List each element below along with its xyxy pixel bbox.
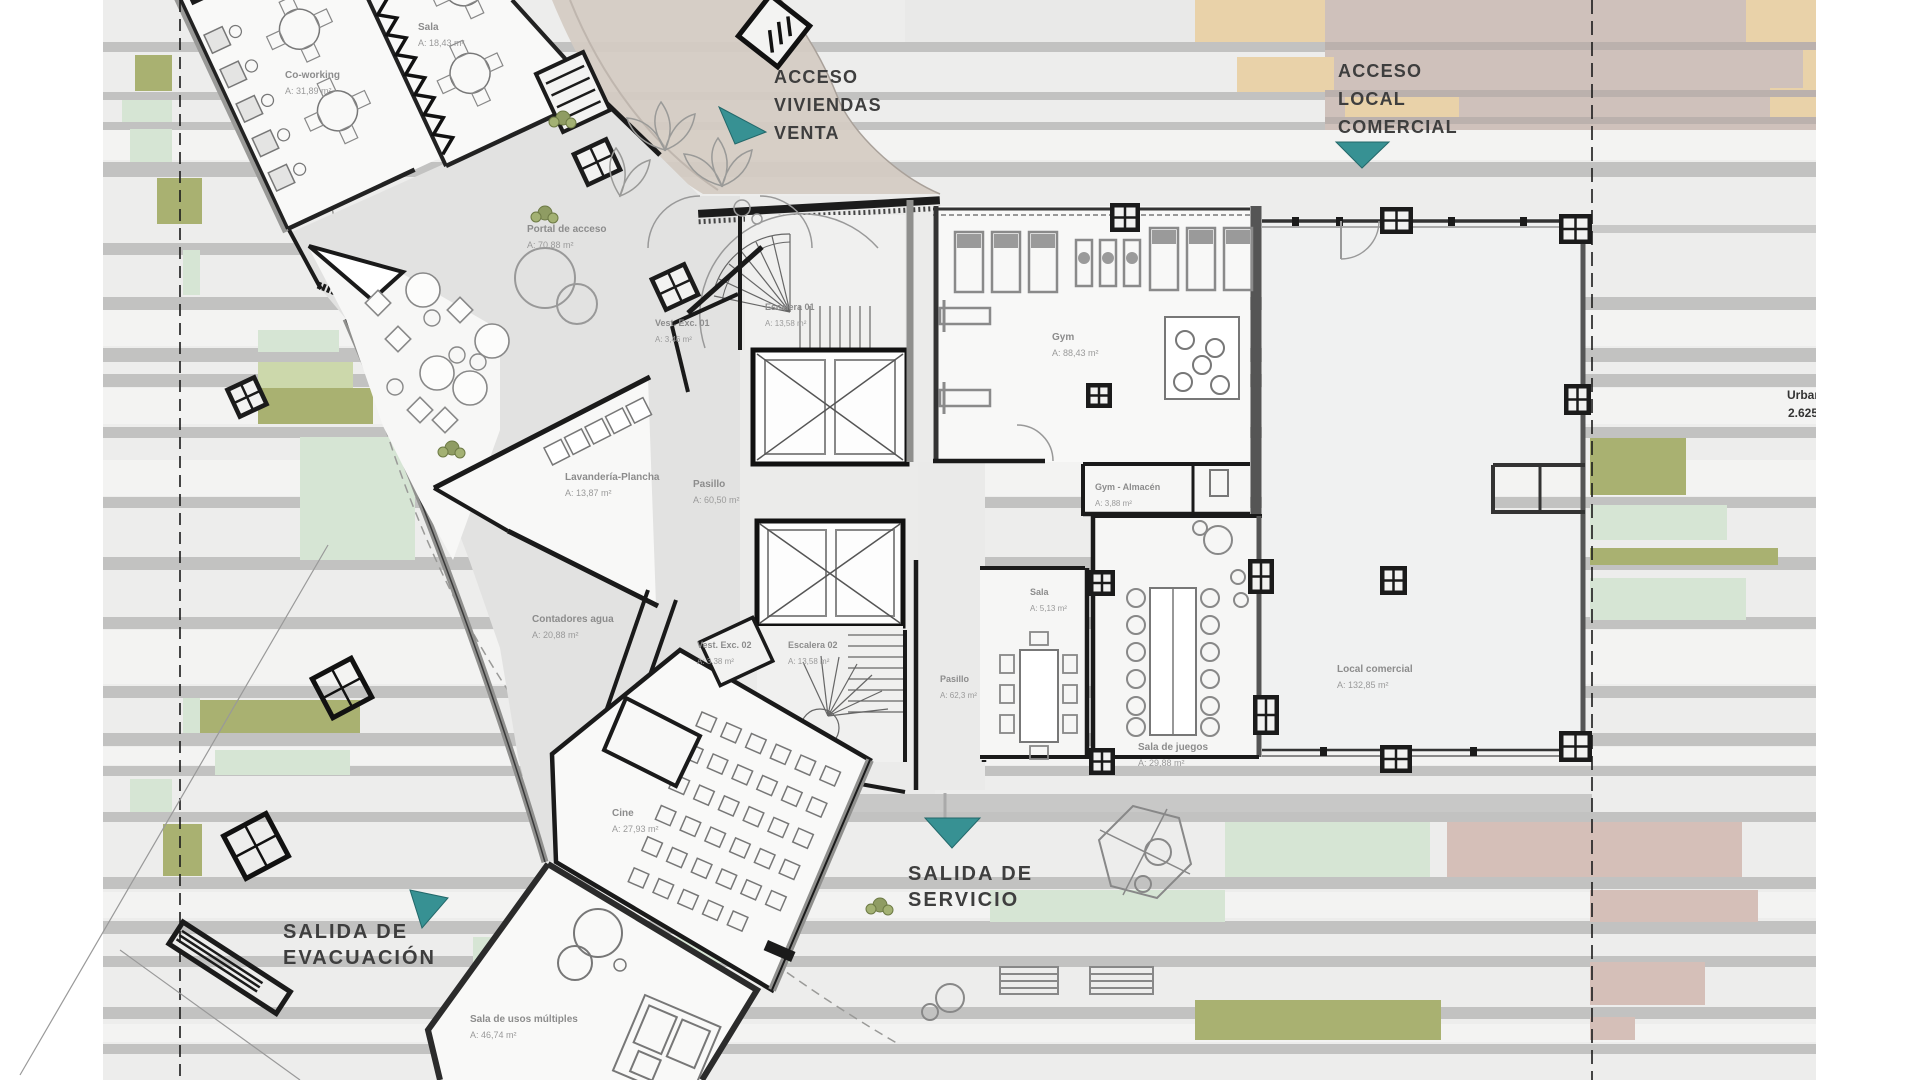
svg-text:A: 18,43 m²: A: 18,43 m² — [418, 38, 465, 48]
svg-text:Gym - Almacén: Gym - Almacén — [1095, 482, 1160, 492]
svg-text:A: 27,93 m²: A: 27,93 m² — [612, 824, 659, 834]
svg-text:Co-working: Co-working — [285, 70, 340, 81]
svg-text:A: 13,58 m²: A: 13,58 m² — [765, 319, 807, 328]
svg-text:A: 132,85 m²: A: 132,85 m² — [1337, 680, 1389, 690]
svg-text:Vest. Exc. 01: Vest. Exc. 01 — [655, 318, 710, 328]
svg-text:A: 46,74 m²: A: 46,74 m² — [470, 1030, 517, 1040]
svg-text:Vest. Exc. 02: Vest. Exc. 02 — [697, 640, 752, 650]
svg-text:Lavandería-Plancha: Lavandería-Plancha — [565, 472, 660, 483]
svg-text:2.625: 2.625 — [1788, 406, 1818, 420]
svg-text:A: 70,88 m²: A: 70,88 m² — [527, 240, 574, 250]
svg-text:A: 29,88 m²: A: 29,88 m² — [1138, 758, 1185, 768]
svg-text:A: 20,88 m²: A: 20,88 m² — [532, 630, 579, 640]
svg-text:Sala de juegos: Sala de juegos — [1138, 742, 1208, 753]
svg-text:Portal de acceso: Portal de acceso — [527, 224, 606, 235]
svg-text:Sala de usos múltiples: Sala de usos múltiples — [470, 1014, 578, 1025]
svg-text:A: 5,13 m²: A: 5,13 m² — [1030, 604, 1067, 613]
svg-text:Local comercial: Local comercial — [1337, 664, 1413, 675]
svg-text:A: 13,87 m²: A: 13,87 m² — [565, 488, 612, 498]
svg-text:Pasillo: Pasillo — [693, 479, 725, 490]
svg-text:Pasillo: Pasillo — [940, 674, 970, 684]
svg-text:A: 31,89 m²: A: 31,89 m² — [285, 86, 332, 96]
svg-text:A: 62,3 m²: A: 62,3 m² — [940, 691, 977, 700]
svg-text:Cine: Cine — [612, 808, 634, 819]
svg-text:Sala: Sala — [1030, 587, 1050, 597]
svg-text:Gym: Gym — [1052, 332, 1074, 343]
svg-text:A: 60,50 m²: A: 60,50 m² — [693, 495, 740, 505]
svg-text:A: 3,38 m²: A: 3,38 m² — [697, 657, 734, 666]
svg-text:A: 3,88 m²: A: 3,88 m² — [1095, 499, 1132, 508]
svg-text:Sala: Sala — [418, 22, 439, 33]
svg-text:Escalera 02: Escalera 02 — [788, 640, 838, 650]
svg-text:Escalera 01: Escalera 01 — [765, 302, 815, 312]
svg-text:A: 13,58 m²: A: 13,58 m² — [788, 657, 830, 666]
svg-text:Contadores agua: Contadores agua — [532, 614, 614, 625]
svg-text:A: 88,43 m²: A: 88,43 m² — [1052, 348, 1099, 358]
svg-text:A: 3,46 m²: A: 3,46 m² — [655, 335, 692, 344]
